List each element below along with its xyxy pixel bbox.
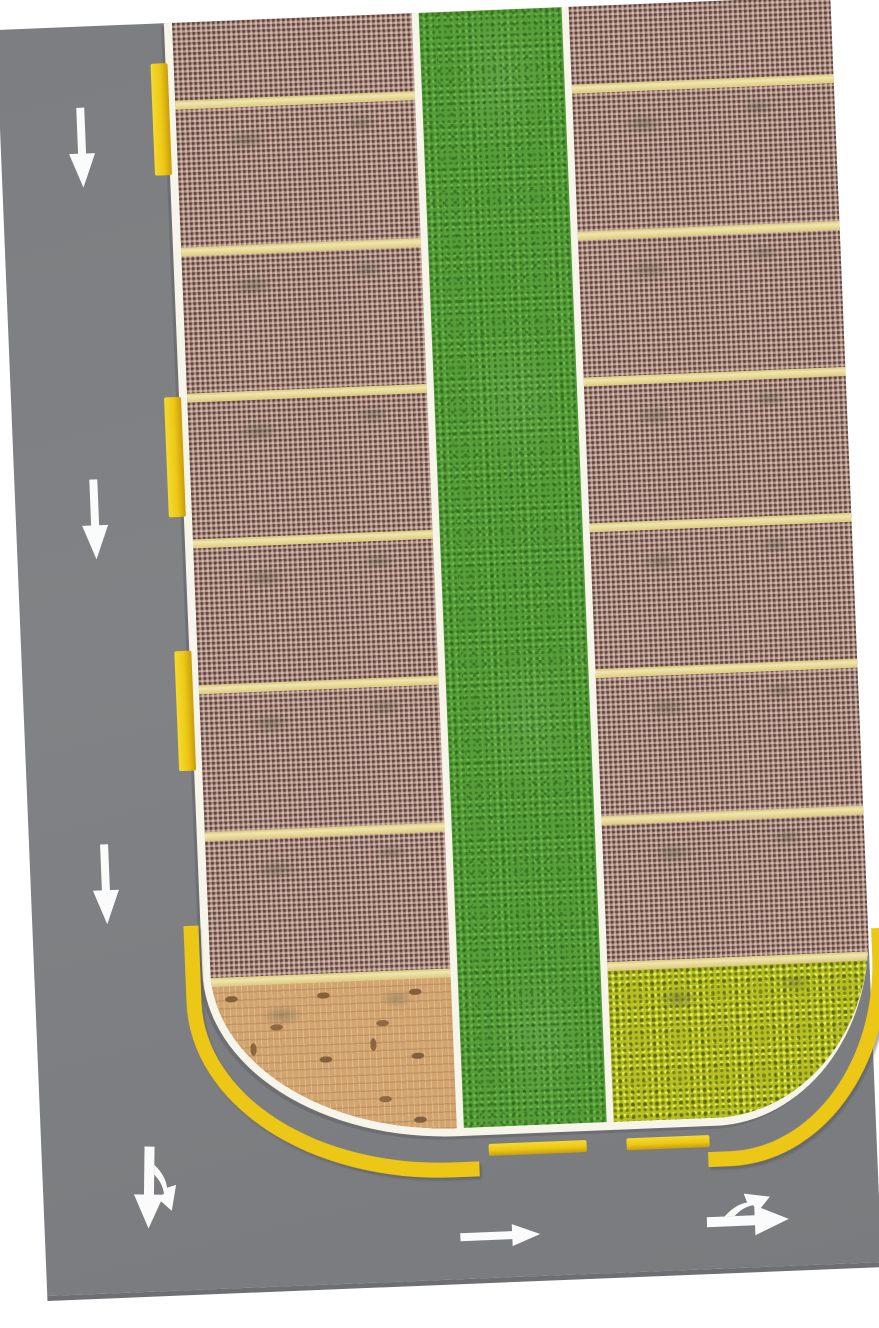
stall-separator-line — [193, 530, 433, 549]
stall-separator-line — [181, 238, 421, 257]
product-photo — [0, 0, 879, 1328]
stall-separator-line — [584, 367, 846, 387]
lane-arrow-right — [460, 1221, 541, 1250]
stall-separator-line — [601, 806, 863, 826]
stall-separator-line — [572, 74, 834, 94]
curb-dash — [626, 1135, 709, 1150]
stall-separator-line — [175, 91, 415, 110]
curb-corner-band-bottom-right — [699, 928, 879, 1167]
stall-separator-line — [578, 221, 840, 241]
lane-arrow-down — [89, 844, 122, 925]
curb-corner-band-bottom-left — [183, 915, 479, 1188]
stall-separator-line — [589, 513, 851, 533]
stall-separator-line — [199, 676, 439, 695]
lane-arrow-down — [78, 479, 111, 560]
parking-mat — [0, 0, 879, 1301]
junction-fork-arrow — [125, 1146, 180, 1232]
curb-dash — [488, 1140, 586, 1156]
stall-separator-line — [595, 659, 857, 679]
lane-fork-arrow — [706, 1189, 792, 1244]
stall-separator-line — [187, 384, 427, 403]
lane-arrow-down — [65, 107, 98, 188]
stall-separator-line — [205, 822, 445, 841]
